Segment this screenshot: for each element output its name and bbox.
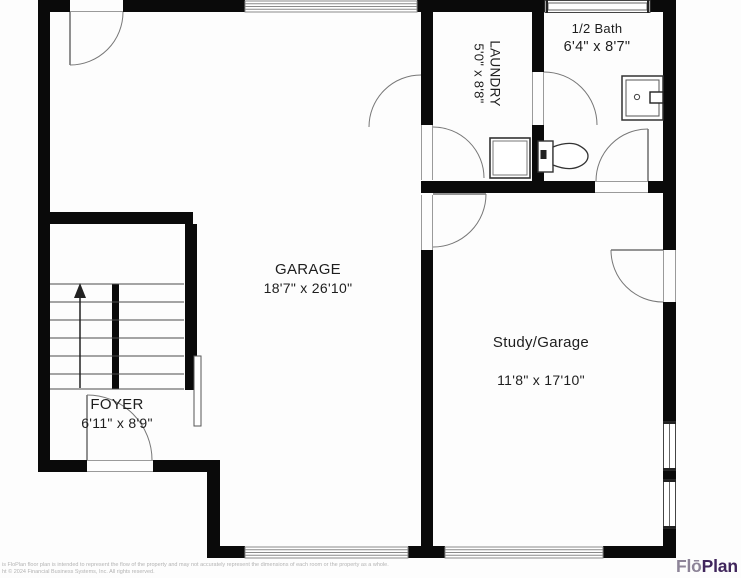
laundry-name: LAUNDRY [488,24,503,124]
top-wall-seg1 [38,0,70,12]
disclaimer: is FloPlan floor plan is intended to rep… [2,562,389,576]
stair-direction-arrow-head [74,283,86,298]
foyer-label: FOYER 6'11" x 8'9" [37,396,197,431]
study-garage-label: Study/Garage 11'8" x 17'10" [451,334,631,388]
sink-drain [634,94,639,99]
study-west-door-arc [433,194,486,247]
garage-dims: 18'7" x 26'10" [218,280,398,296]
study-right-window-1 [663,422,676,470]
toilet-bowl [553,143,588,168]
laundry-door-arc [433,127,484,178]
foyer-bottom-wall-seg1 [38,460,87,472]
foyer-top-wall [38,212,193,224]
half-bath-label: 1/2 Bath 6'4" x 8'7" [537,21,657,55]
washer [490,138,530,178]
right-wall-seg1 [663,0,676,250]
half-bath-dims: 6'4" x 8'7" [537,39,657,55]
laundry-label: LAUNDRY 5'0" x 8'8" [472,24,503,124]
garage-label: GARAGE 18'7" x 26'10" [218,261,398,296]
bottom-wall-seg3 [603,546,676,558]
stair-divider [112,284,119,389]
foyer-dims: 6'11" x 8'9" [37,415,197,431]
bottom-wall-seg2 [408,546,445,558]
garage-top-window [245,1,417,12]
doors [70,12,663,460]
garage-divider-wall-seg1 [421,12,433,125]
right-wall-seg2 [663,302,676,422]
top-wall-seg2 [123,0,245,12]
entry-door-arc [70,12,123,65]
disclaimer-line-2: ht © 2024 Financial Business Systems, In… [2,569,389,576]
top-wall-seg3 [417,0,545,12]
study-bottom-window [445,547,603,558]
study-right-window-2 [663,480,676,528]
disclaimer-line-1: is FloPlan floor plan is intended to rep… [2,562,389,569]
bath-south-door-arc [596,129,648,181]
toilet [538,141,588,172]
laundry-dims: 5'0" x 8'8" [472,24,487,124]
garage-bottom-window [245,547,408,558]
step-wall [207,460,220,558]
bath-sink [622,76,663,120]
service-bottom-wall-seg1 [421,181,595,193]
study-right-door-arc [611,250,663,302]
door-leaves [70,12,663,460]
half-bath-name: 1/2 Bath [537,21,657,36]
laundry-door-garage-arc [369,75,421,127]
floplan-logo-suffix: Plan [702,556,738,576]
sink-faucet [650,92,663,103]
fixtures [490,76,663,178]
garage-name: GARAGE [218,261,398,278]
floplan-logo-prefix: Flō [676,556,702,576]
bath-top-window [545,0,650,13]
study-garage-dims: 11'8" x 17'10" [451,372,631,388]
right-wall-window-mullion [663,470,676,480]
bath-door-arc [544,72,597,125]
door-arcs [70,12,663,460]
foyer-name: FOYER [37,396,197,413]
floplan-logo: FlōPlan [676,556,738,577]
study-garage-name: Study/Garage [451,334,631,351]
toilet-flush-button [541,150,547,159]
floor-plan: GARAGE 18'7" x 26'10" Study/Garage 11'8"… [0,0,741,578]
garage-divider-wall-seg2 [421,250,433,546]
service-bottom-wall-seg2 [648,181,676,193]
